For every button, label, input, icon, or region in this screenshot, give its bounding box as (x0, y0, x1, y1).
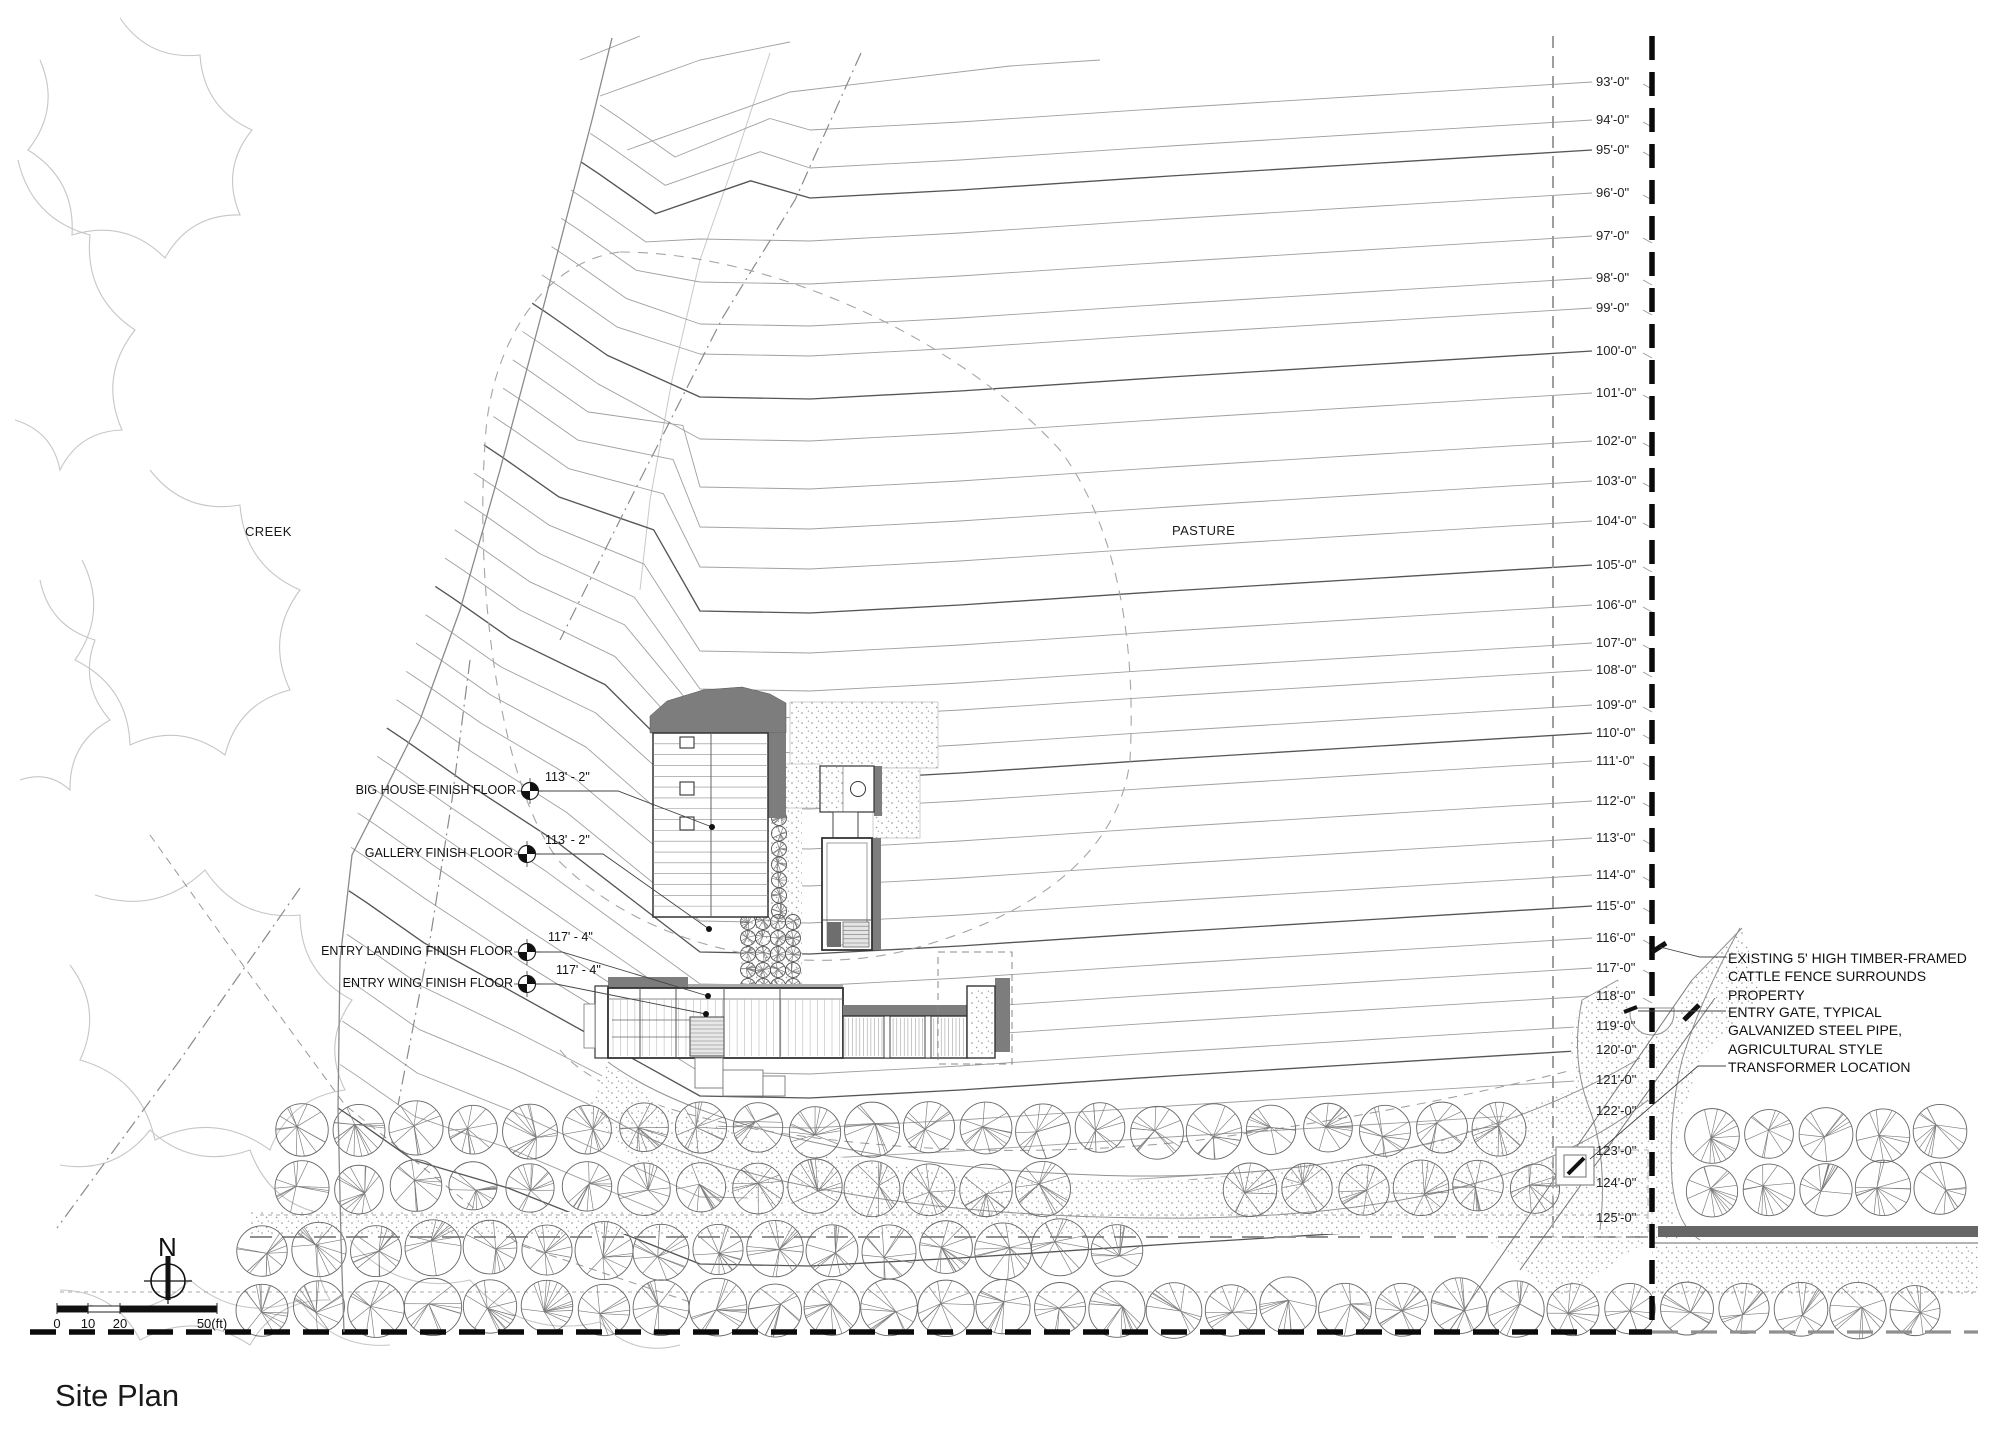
tree-symbol (449, 1105, 498, 1154)
tree-canopy (1091, 1225, 1143, 1277)
tree-symbol (975, 1223, 1032, 1280)
tree-symbol (292, 1222, 346, 1276)
tree-canopy (294, 1281, 345, 1332)
tree-symbol (1472, 1102, 1526, 1156)
tree-symbol (522, 1225, 572, 1275)
tree-symbol (772, 857, 787, 872)
tree-symbol (756, 931, 771, 946)
tree-symbol (1246, 1105, 1295, 1154)
tree-symbol (521, 1280, 573, 1332)
tree-symbol (771, 931, 786, 946)
tree-symbol (675, 1102, 726, 1153)
tree-symbol (772, 842, 787, 857)
canopy-cloud (28, 18, 252, 258)
tree-canopy (463, 1220, 517, 1274)
tree-symbol (351, 1226, 402, 1277)
tree-canopy (1488, 1281, 1544, 1337)
tree-canopy (806, 1225, 858, 1277)
skylight (680, 782, 694, 795)
tree-symbol (747, 1220, 803, 1276)
entry-wing (608, 988, 843, 1058)
canopy-cloud (75, 470, 300, 755)
tree-symbol (741, 963, 756, 978)
wing-west-tab (584, 1004, 595, 1048)
tree-symbol (1800, 1164, 1852, 1216)
symbol-quadrant (519, 854, 528, 863)
tree-symbol (563, 1105, 612, 1154)
tree-symbol (862, 1225, 916, 1279)
symbol-quadrant (519, 984, 528, 993)
tree-symbol (620, 1103, 669, 1152)
contour-114 (397, 700, 1592, 923)
finish-floor-symbol (514, 939, 540, 965)
tree-symbol (756, 963, 771, 978)
tree-symbol (733, 1103, 782, 1152)
tree-canopy (292, 1222, 346, 1276)
tree-symbol (918, 1280, 974, 1336)
tree-symbol (741, 931, 756, 946)
tree-symbol (1205, 1285, 1256, 1336)
tree-symbol (405, 1220, 461, 1276)
road-pavement (1658, 1226, 1978, 1237)
tree-canopy (351, 1226, 402, 1277)
tree-symbol (463, 1280, 516, 1333)
contour-104 (493, 417, 1592, 569)
pergola-post (884, 1016, 890, 1058)
tree-symbol (1605, 1283, 1655, 1333)
symbol-quadrant (522, 791, 531, 800)
tree-symbol (1686, 1166, 1737, 1217)
symbol-quadrant (530, 783, 539, 792)
annex-shadow (874, 766, 882, 816)
tree-symbol (506, 1164, 554, 1212)
tree-canopy (1223, 1163, 1277, 1217)
tree-canopy (733, 1103, 782, 1152)
tree-canopy (903, 1102, 954, 1153)
tree-symbol (404, 1278, 461, 1335)
tree-symbol (748, 1284, 801, 1337)
tree-symbol (449, 1162, 497, 1210)
contour-98 (552, 247, 1592, 326)
contour-95 (581, 150, 1592, 214)
big-house-roof-shadow (650, 687, 786, 733)
tree-symbol (1131, 1106, 1184, 1159)
tree-symbol (1743, 1164, 1795, 1216)
tree-symbol (237, 1226, 287, 1276)
tree-symbol (772, 826, 787, 841)
tree-symbol (756, 947, 771, 962)
contour-97 (561, 218, 1592, 284)
scale-seg (57, 1306, 88, 1312)
tree-canopy (276, 1104, 328, 1156)
tree-canopy (578, 1284, 629, 1335)
annex-stipple (821, 767, 843, 811)
tree-canopy (405, 1220, 461, 1276)
tree-symbol (1431, 1278, 1487, 1334)
tree-canopy (689, 1278, 747, 1336)
contour-111 (426, 615, 1592, 809)
creek-line (640, 53, 770, 590)
tree-symbol (960, 1164, 1012, 1216)
tree-symbol (1319, 1283, 1372, 1336)
tree-symbol (1282, 1163, 1332, 1213)
tree-canopy (1605, 1283, 1655, 1333)
tree-symbol (1547, 1284, 1599, 1336)
tree-canopy (1719, 1283, 1769, 1333)
tree-symbol (772, 888, 787, 903)
tree-symbol (1661, 1282, 1714, 1335)
tree-symbol (1091, 1225, 1143, 1277)
tree-symbol (861, 1279, 918, 1336)
contour-label-tick (1643, 998, 1652, 1003)
tree-symbol (275, 1161, 329, 1215)
tree-symbol (294, 1281, 345, 1332)
tree-symbol (1393, 1160, 1449, 1216)
tree-symbol (804, 1280, 860, 1336)
tree-canopy (844, 1161, 900, 1217)
skylight (680, 737, 694, 748)
tree-canopy (756, 931, 771, 946)
tree-canopy (449, 1162, 497, 1210)
tree-symbol (786, 915, 801, 930)
contour-105 (484, 445, 1592, 613)
tree-canopy (975, 1223, 1032, 1280)
tree-symbol (1685, 1109, 1740, 1164)
tree-symbol (1774, 1282, 1828, 1336)
tree-canopy (976, 1280, 1030, 1334)
tree-symbol (335, 1165, 384, 1214)
scale-seg (120, 1306, 217, 1312)
wing-stair (690, 1017, 724, 1056)
contour-99 (542, 275, 1592, 356)
tree-canopy (1360, 1105, 1411, 1156)
leader-dot (709, 824, 715, 830)
pergola-post (925, 1016, 931, 1058)
contour-lines (338, 36, 1652, 1266)
partial-contour (600, 42, 790, 96)
dash-dot-line (560, 53, 861, 640)
symbol-quadrant (527, 846, 536, 855)
tree-canopy (633, 1224, 689, 1280)
tree-symbol (741, 947, 756, 962)
tree-canopy (920, 1221, 973, 1274)
tree-symbol (276, 1104, 328, 1156)
tree-symbol (733, 1163, 784, 1214)
tree-symbol (771, 915, 786, 930)
tree-symbol (1914, 1162, 1966, 1214)
tree-symbol (1223, 1163, 1277, 1217)
contour-93 (600, 82, 1592, 157)
tree-canopy (618, 1163, 670, 1215)
symbol-quadrant (527, 976, 536, 985)
tree-symbol (1417, 1102, 1468, 1153)
tree-symbol (693, 1224, 743, 1274)
tree-symbol (389, 1101, 443, 1155)
tree-symbol (1339, 1165, 1389, 1215)
tree-symbol (1745, 1110, 1794, 1159)
tree-symbol (390, 1160, 442, 1212)
contour-106 (474, 473, 1592, 653)
contour-117 (368, 785, 1593, 1016)
entry-steps (695, 1058, 723, 1088)
tree-canopy (1743, 1164, 1795, 1216)
contour-94 (590, 120, 1592, 185)
contour-label-tick (1643, 672, 1652, 677)
tree-symbol (618, 1163, 670, 1215)
tree-symbol (1016, 1161, 1071, 1216)
tree-symbol (1376, 1283, 1429, 1336)
wing-east-shadow (995, 978, 1010, 1052)
tree-symbol (1035, 1283, 1086, 1334)
contour-107 (464, 501, 1592, 691)
north-needle (166, 1256, 171, 1300)
tree-symbol (786, 963, 801, 978)
tree-canopy (693, 1224, 743, 1274)
entry-steps (723, 1070, 763, 1096)
tree-symbol (1304, 1103, 1353, 1152)
leader-dot (703, 1011, 709, 1017)
tree-symbol (348, 1281, 405, 1338)
tree-symbol (844, 1102, 899, 1157)
tree-canopy (333, 1104, 385, 1156)
tree-canopy (633, 1280, 689, 1336)
tree-canopy (1774, 1282, 1828, 1336)
tree-symbol (786, 947, 801, 962)
tree-symbol (771, 963, 786, 978)
tree-symbol (788, 1159, 842, 1213)
contour-label-tick (1643, 280, 1652, 285)
tree-symbol (1031, 1219, 1088, 1276)
tree-symbol (1360, 1105, 1411, 1156)
gallery-link (833, 812, 858, 838)
contour-label-tick (1643, 567, 1652, 572)
tree-symbol (1453, 1160, 1504, 1211)
tree-symbol (633, 1280, 689, 1336)
tree-symbol (786, 931, 801, 946)
tree-symbol (789, 1107, 840, 1158)
tree-symbol (575, 1222, 633, 1280)
tree-symbol (1260, 1277, 1316, 1333)
contour-label-tick (1643, 353, 1652, 358)
tree-symbol (1075, 1103, 1125, 1153)
pergola-shadow (843, 1005, 967, 1017)
contour-109 (445, 558, 1592, 753)
tree-symbol (976, 1280, 1030, 1334)
tree-symbol (771, 947, 786, 962)
site-plan-drawing (0, 0, 2000, 1456)
upper-court (790, 702, 938, 768)
partial-contour (627, 60, 1100, 150)
big-house-east-shadow (768, 733, 786, 818)
wing-west-cap (595, 986, 608, 1058)
tree-symbol (463, 1220, 517, 1274)
tree-canopy (862, 1225, 916, 1279)
tree-symbol (633, 1224, 689, 1280)
gallery-shadow (872, 838, 881, 950)
finish-floor-symbol (514, 971, 540, 997)
tree-symbol (1488, 1281, 1544, 1337)
tree-symbol (903, 1164, 955, 1216)
annex-circle (851, 782, 866, 797)
tree-symbol (1890, 1286, 1940, 1336)
symbol-quadrant (519, 952, 528, 961)
tree-canopy (1745, 1110, 1794, 1159)
wing-east-stipple (969, 988, 993, 1056)
entry-steps (763, 1076, 785, 1096)
tree-symbol (676, 1163, 725, 1212)
finish-floor-symbol (514, 841, 540, 867)
tree-symbol (1913, 1104, 1967, 1158)
tree-symbol (903, 1102, 954, 1153)
tree-symbol (920, 1221, 973, 1274)
leader-dot (705, 993, 711, 999)
tree-symbol (333, 1104, 385, 1156)
gallery-walk (783, 764, 820, 808)
contour-115 (387, 728, 1592, 954)
tree-symbol (844, 1161, 900, 1217)
leader-dot (706, 926, 712, 932)
tree-symbol (578, 1284, 629, 1335)
gallery-core (827, 922, 841, 947)
tree-symbol (806, 1225, 858, 1277)
contour-108 (455, 530, 1592, 718)
canopy-cloud (15, 160, 135, 470)
site-plan-sheet: CREEK PASTURE N 0 10 20 50(ft) Site Plan… (0, 0, 2000, 1456)
tree-canopy (463, 1280, 516, 1333)
tree-symbol (1016, 1104, 1071, 1159)
contour-96 (571, 190, 1592, 242)
contour-102 (513, 360, 1592, 489)
contour-label-tick (1643, 607, 1652, 612)
tree-symbol (1855, 1160, 1910, 1215)
tree-canopy (861, 1279, 918, 1336)
symbol-quadrant (527, 944, 536, 953)
tree-symbol (1799, 1108, 1853, 1162)
tree-symbol (236, 1284, 288, 1336)
tree-symbol (562, 1162, 611, 1211)
canopy-cloud (20, 580, 110, 790)
contour-112 (416, 643, 1592, 849)
north-and-scale (57, 1256, 217, 1314)
tree-symbol (1719, 1283, 1769, 1333)
tree-symbol (960, 1102, 1012, 1154)
tree-symbol (503, 1104, 558, 1159)
tree-symbol (1089, 1281, 1145, 1337)
tree-symbol (689, 1278, 747, 1336)
tree-symbol (1186, 1104, 1241, 1159)
tree-symbol (1856, 1109, 1910, 1163)
tree-symbol (772, 873, 787, 888)
